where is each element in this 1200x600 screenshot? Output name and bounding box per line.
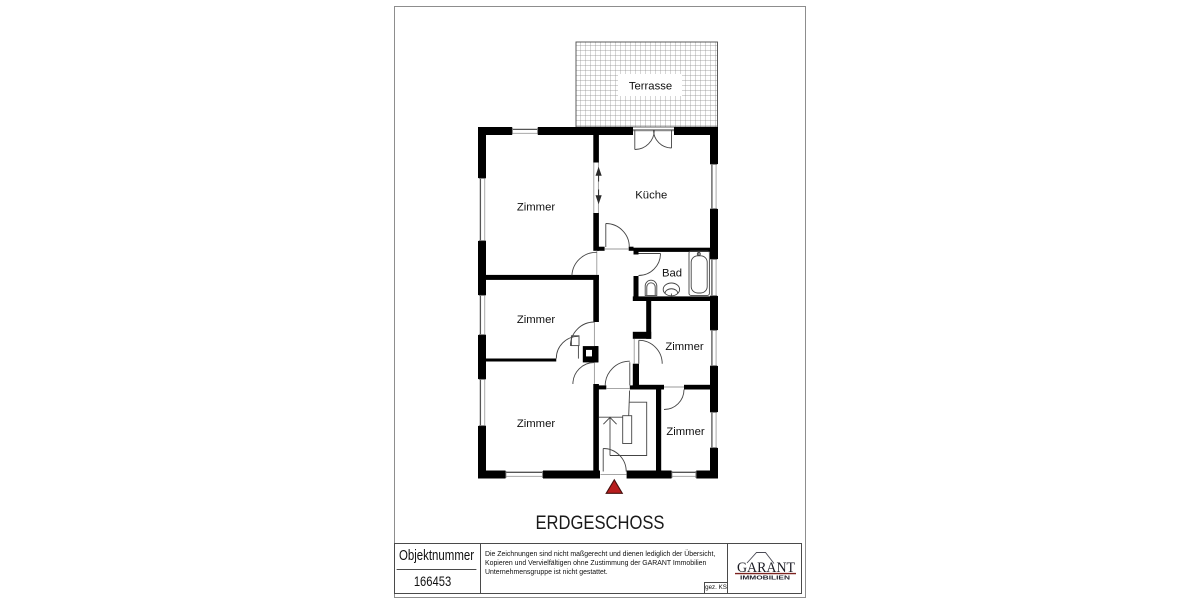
svg-text:Zimmer: Zimmer xyxy=(517,418,556,430)
svg-text:Zimmer: Zimmer xyxy=(665,341,704,353)
svg-text:Zimmer: Zimmer xyxy=(517,202,556,214)
svg-text:ERDGESCHOSS: ERDGESCHOSS xyxy=(536,512,665,534)
svg-text:Zimmer: Zimmer xyxy=(517,314,556,326)
svg-text:IMMOBILIEN: IMMOBILIEN xyxy=(740,576,790,582)
svg-text:Bad: Bad xyxy=(662,267,682,279)
svg-text:Zimmer: Zimmer xyxy=(666,426,705,438)
svg-text:Terrasse: Terrasse xyxy=(629,81,672,93)
svg-text:Küche: Küche xyxy=(635,189,667,201)
